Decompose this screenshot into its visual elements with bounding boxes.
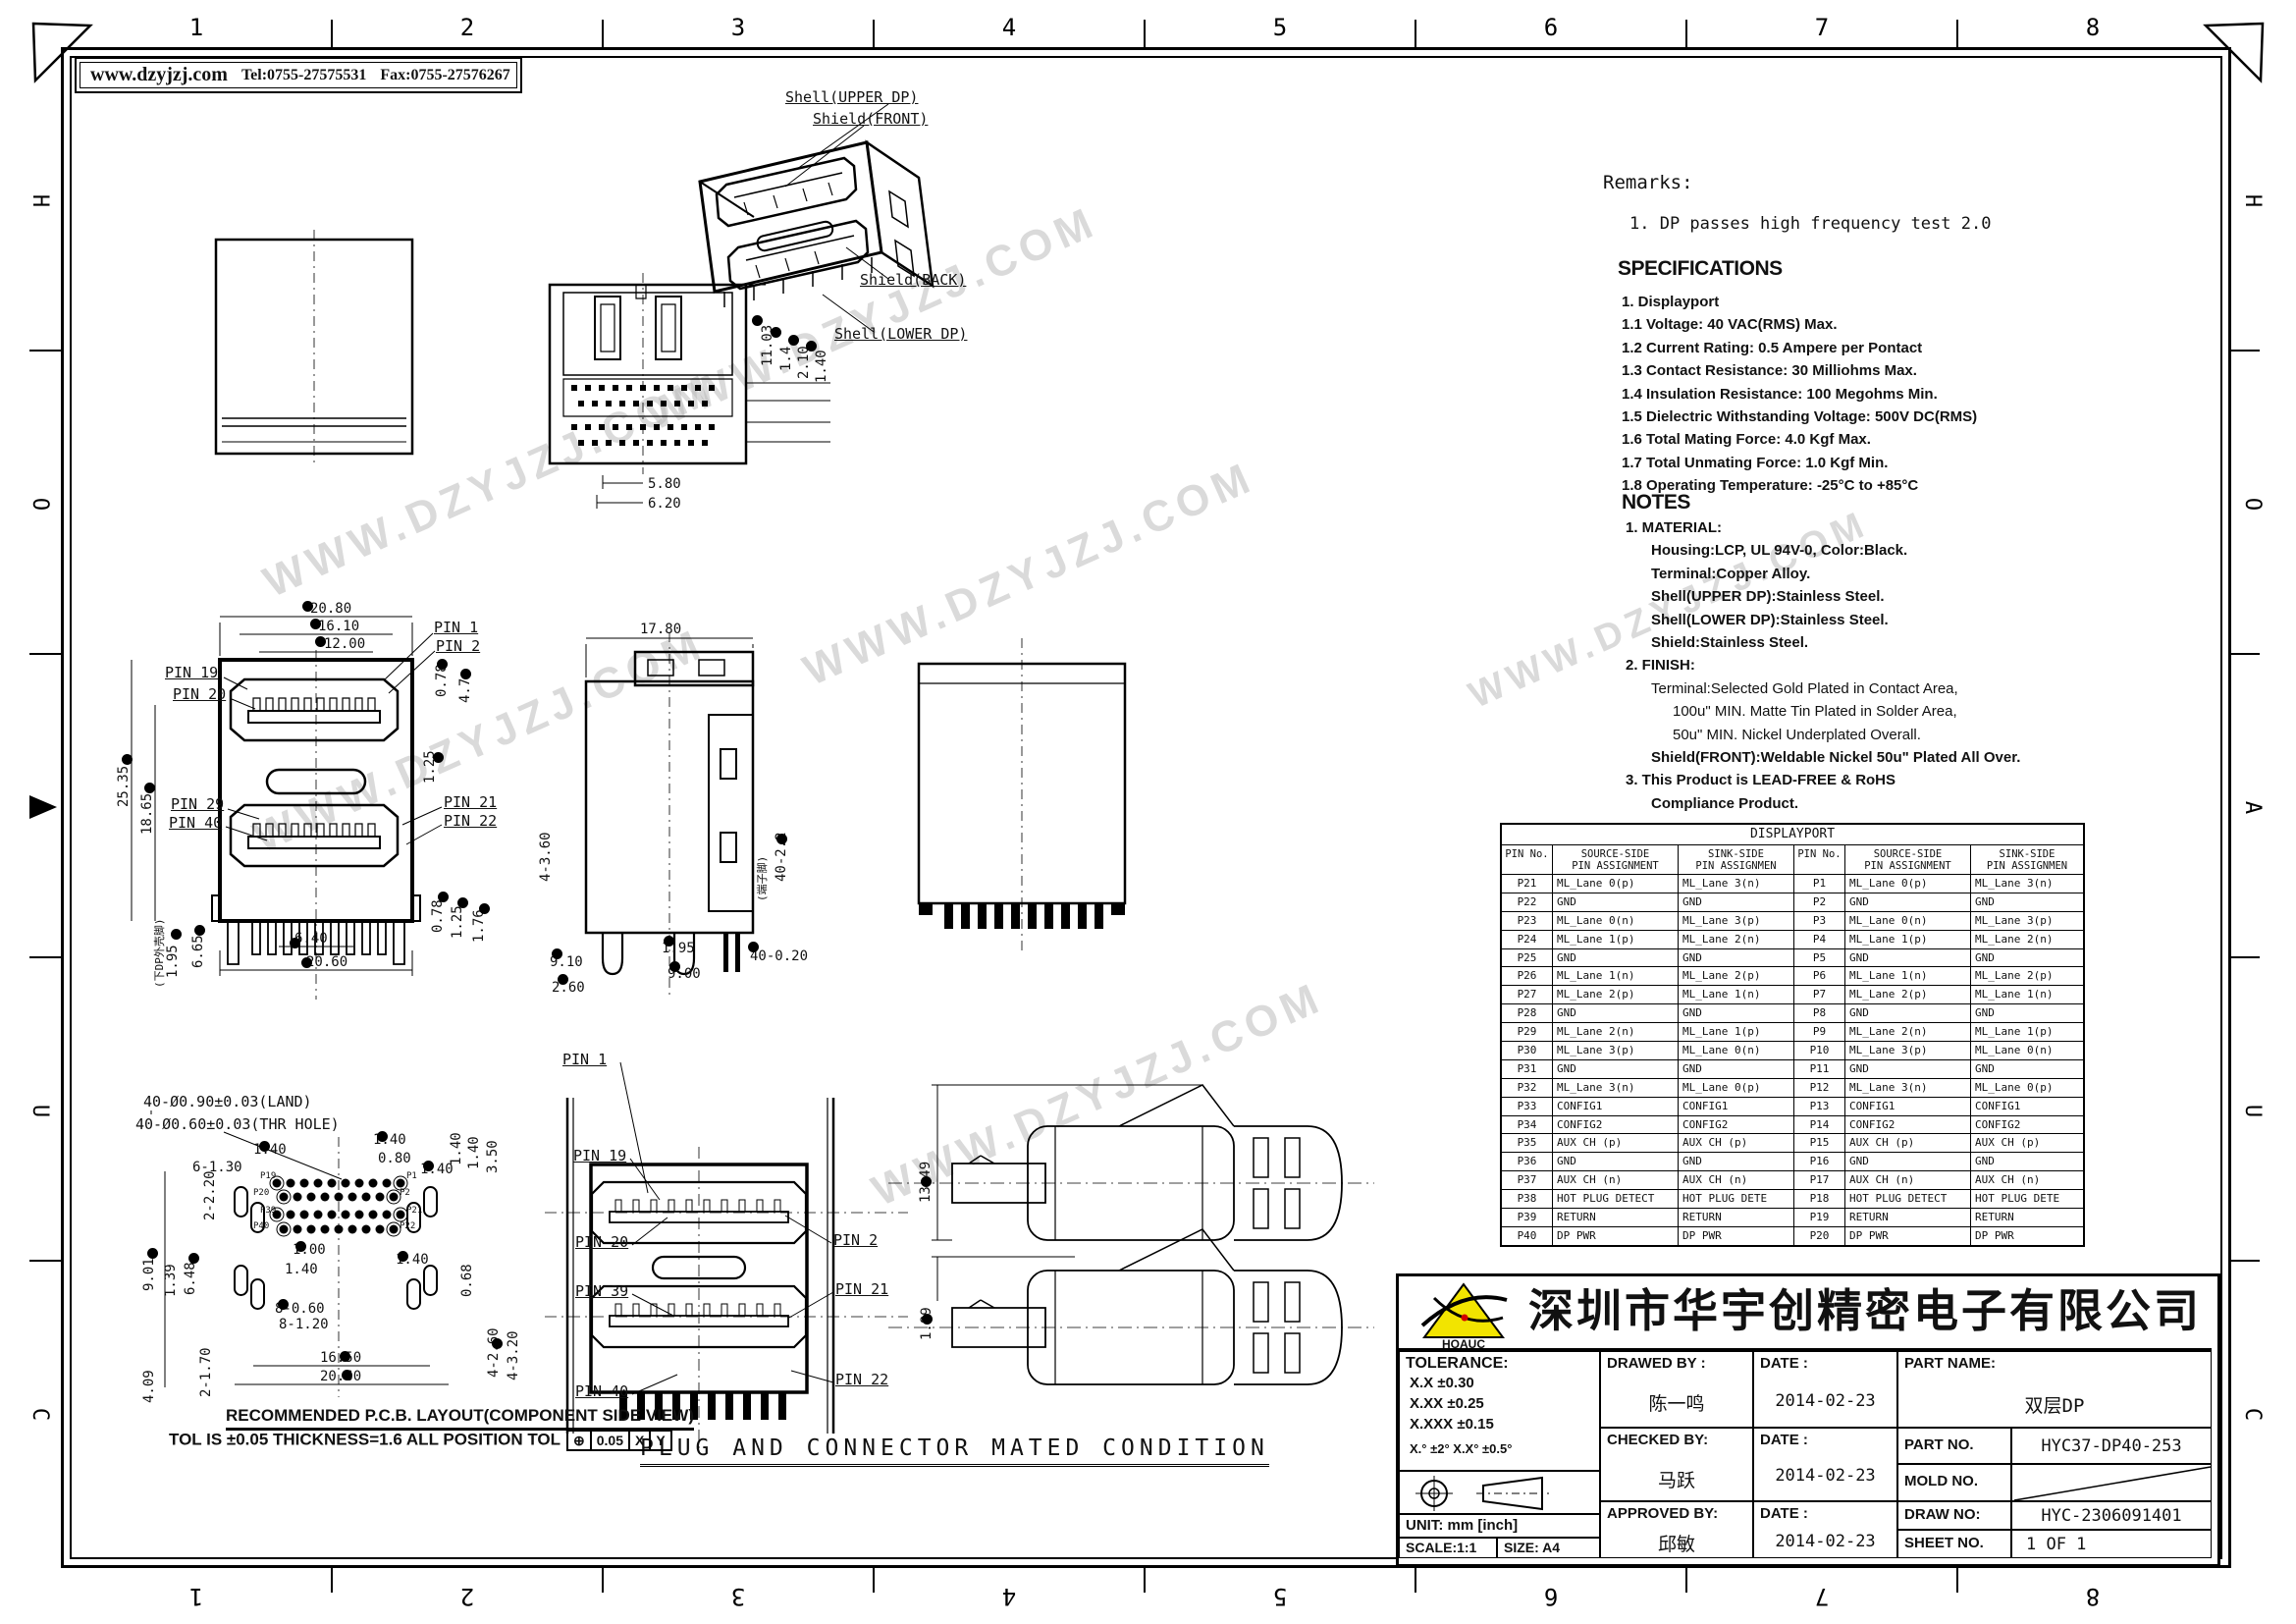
table-cell: GND [1845, 1060, 1971, 1078]
pad-label-p20: P20 [253, 1188, 269, 1198]
position-tolerance-frame: ⊕0.05XY [566, 1430, 672, 1451]
grid-tick [873, 1565, 875, 1593]
grid-tick [602, 20, 604, 47]
table-cell: GND [1679, 1004, 1794, 1022]
grid-tick [602, 1565, 604, 1593]
position-symbol: ⊕ [568, 1432, 592, 1449]
grid-tick [1415, 1565, 1416, 1593]
table-cell: DP PWR [1553, 1227, 1679, 1245]
company-banner: HOAUC 深圳市华宇创精密电子有限公司 [1399, 1276, 2212, 1351]
date-label: DATE : [1754, 1502, 1896, 1522]
spec-item: 1.5 Dielectric Withstanding Voltage: 500… [1622, 406, 1977, 428]
table-cell: GND [1553, 1153, 1679, 1170]
datum-y: Y [651, 1432, 669, 1449]
label-shield-back: Shield(BACK) [860, 271, 966, 289]
grid-col-label: 4 [989, 14, 1029, 41]
table-cell: P39 [1502, 1209, 1553, 1226]
table-cell: AUX CH (p) [1971, 1134, 2083, 1152]
dim-land: 40-Ø0.90±0.03(LAND) [143, 1093, 312, 1110]
tolerance-title: TOLERANCE: [1400, 1352, 1599, 1373]
table-cell: P29 [1502, 1023, 1553, 1041]
table-cell: GND [1971, 893, 2083, 911]
size-cell: SIZE: A4 [1497, 1538, 1600, 1558]
dim-1-95: 1.95 [165, 945, 181, 978]
grid-col-label: 1 [177, 1583, 216, 1610]
drawed-by-name: 陈一鸣 [1601, 1389, 1752, 1416]
grid-row-label: C [27, 1408, 52, 1421]
table-row: P27ML_Lane 2(p)ML_Lane 1(n)P7ML_Lane 2(p… [1502, 986, 2083, 1004]
table-cell: P14 [1794, 1116, 1845, 1134]
table-header-cell: PIN No. [1502, 845, 1553, 874]
balloon-marker [278, 1299, 289, 1310]
table-header-row: PIN No. SOURCE-SIDEPIN ASSIGNMENT SINK-S… [1502, 845, 2083, 875]
projection-symbols [1400, 1474, 1596, 1513]
view-pcb-layout: 40-Ø0.90±0.03(LAND) 40-Ø0.60±0.03(THR HO… [106, 1063, 592, 1456]
balloon-marker [460, 669, 471, 679]
table-cell: ML_Lane 1(p) [1971, 1023, 2083, 1041]
table-cell: GND [1679, 1153, 1794, 1170]
balloon-marker [806, 341, 817, 352]
label-pin2: PIN 2 [833, 1231, 878, 1249]
table-cell: ML_Lane 3(p) [1971, 912, 2083, 930]
sheet-no-label: SHEET NO. [1898, 1531, 2010, 1551]
table-cell: P10 [1794, 1042, 1845, 1059]
label-pin1: PIN 1 [434, 619, 478, 636]
table-cell: ML_Lane 2(n) [1553, 1023, 1679, 1041]
table-cell: P36 [1502, 1153, 1553, 1170]
dim-6-20: 6.20 [648, 496, 681, 512]
table-cell: CONFIG2 [1679, 1116, 1794, 1134]
table-cell: ML_Lane 1(n) [1679, 986, 1794, 1003]
table-cell: AUX CH (n) [1845, 1171, 1971, 1189]
balloon-marker [144, 783, 155, 793]
dim-2-60: 2.60 [552, 980, 585, 996]
grid-tick [1956, 20, 1958, 47]
table-cell: P12 [1794, 1079, 1845, 1097]
grid-tick [29, 350, 61, 352]
grid-tick [2228, 956, 2260, 958]
date-value: 2014-02-23 [1754, 1532, 1896, 1551]
table-cell: DP PWR [1971, 1227, 2083, 1245]
grid-tick [1685, 20, 1687, 47]
table-row: P24ML_Lane 1(p)ML_Lane 2(n)P4ML_Lane 1(p… [1502, 931, 2083, 949]
table-cell: ML_Lane 2(n) [1679, 931, 1794, 948]
table-cell: P21 [1502, 875, 1553, 893]
table-cell: DP PWR [1679, 1227, 1794, 1245]
label-shield-front: Shield(FRONT) [813, 110, 928, 128]
dim-8-1-20: 8-1.20 [279, 1317, 329, 1332]
spec-item: 1.2 Current Rating: 0.5 Ampere per Ponta… [1622, 337, 1977, 359]
grid-row-label: H [27, 194, 52, 207]
label-pin21: PIN 21 [444, 793, 497, 811]
balloon-marker [788, 335, 799, 346]
table-row: P37AUX CH (n)AUX CH (n)P17AUX CH (n)AUX … [1502, 1171, 2083, 1190]
grid-tick [873, 20, 875, 47]
table-cell: P35 [1502, 1134, 1553, 1152]
view-side: 17.80 4-3.60 1.95 9.00 9.10 2.60 40-0.20… [542, 587, 836, 1011]
dim-1-76: 1.76 [471, 909, 487, 943]
table-cell: GND [1553, 1060, 1679, 1078]
note-item: Compliance Product. [1651, 792, 2020, 815]
engineering-drawing-sheet: WWW.DZYJZJ.COM WWW.DZYJZJ.COM WWW.DZYJZJ… [0, 0, 2296, 1624]
table-cell: ML_Lane 3(n) [1845, 1079, 1971, 1097]
pad-label-p39: P39 [260, 1206, 276, 1216]
balloon-marker [301, 957, 312, 968]
grid-row-label: A [2240, 801, 2265, 814]
dim-6-48: 6.48 [183, 1262, 198, 1295]
grid-tick [331, 1565, 333, 1593]
dim-6-1-30: 6-1.30 [192, 1160, 242, 1175]
tolerance-angle-line: X.° ±2° X.X° ±0.5° [1400, 1438, 1599, 1459]
date-label: DATE : [1754, 1429, 1896, 1448]
table-header-cell: SINK-SIDEPIN ASSIGNMEN [1971, 845, 2083, 874]
table-cell: P4 [1794, 931, 1845, 948]
table-cell: HOT PLUG DETE [1971, 1190, 2083, 1208]
balloon-marker [921, 1176, 932, 1187]
table-header-cell: SINK-SIDEPIN ASSIGNMEN [1679, 845, 1794, 874]
table-cell: P13 [1794, 1098, 1845, 1115]
note-item: 2. FINISH: [1626, 654, 2020, 677]
balloon-marker [398, 1251, 408, 1262]
dim-thr-hole: 40-Ø0.60±0.03(THR HOLE) [135, 1115, 340, 1133]
pin-dot-rows [571, 385, 715, 446]
dim-6-65: 6.65 [190, 935, 206, 968]
mold-no-value-cell [2011, 1464, 2212, 1501]
part-no-label: PART NO. [1898, 1429, 2010, 1453]
unit-cell: UNIT: mm [inch] [1399, 1514, 1600, 1538]
label-pin29: PIN 29 [171, 795, 224, 813]
spec-item: 1.3 Contact Resistance: 30 Milliohms Max… [1622, 359, 1977, 382]
table-cell: P30 [1502, 1042, 1553, 1059]
dim-3-50: 3.50 [485, 1140, 501, 1173]
specifications-title: SPECIFICATIONS [1618, 257, 1783, 281]
pad-label-p19: P19 [260, 1171, 276, 1181]
table-row: P35AUX CH (p)AUX CH (p)P15AUX CH (p)AUX … [1502, 1134, 2083, 1153]
table-cell: P24 [1502, 931, 1553, 948]
draw-no-value: HYC-2306091401 [2012, 1506, 2211, 1526]
note-item: Terminal:Copper Alloy. [1651, 563, 2020, 585]
table-cell: P32 [1502, 1079, 1553, 1097]
table-cell: ML_Lane 1(n) [1553, 967, 1679, 985]
drawed-by-label: DRAWED BY : [1601, 1352, 1752, 1372]
balloon-marker [147, 1248, 158, 1259]
note-item: 3. This Product is LEAD-FREE & RoHS [1626, 769, 2020, 791]
dim-9-01: 9.01 [141, 1258, 157, 1291]
table-cell: AUX CH (n) [1553, 1171, 1679, 1189]
table-row: P38HOT PLUG DETECTHOT PLUG DETEP18HOT PL… [1502, 1190, 2083, 1209]
grid-tick [1144, 1565, 1146, 1593]
grid-col-label: 8 [2073, 14, 2112, 41]
grid-tick [1415, 20, 1416, 47]
table-cell: GND [1679, 1060, 1794, 1078]
label-pin22: PIN 22 [835, 1371, 888, 1388]
table-row: P22GNDGNDP2GNDGND [1502, 893, 2083, 912]
table-row: P26ML_Lane 1(n)ML_Lane 2(p)P6ML_Lane 1(n… [1502, 967, 2083, 986]
table-cell: P6 [1794, 967, 1845, 985]
table-cell: GND [1845, 1153, 1971, 1170]
spec-item: 1. Displayport [1622, 291, 1977, 313]
table-cell: P18 [1794, 1190, 1845, 1208]
dim-0-78: 0.78 [430, 899, 446, 933]
grid-col-label: 5 [1260, 1583, 1300, 1610]
pad-label-p40: P40 [253, 1221, 269, 1231]
displayport-pin-table: DISPLAYPORT PIN No. SOURCE-SIDEPIN ASSIG… [1500, 823, 2085, 1247]
table-cell: AUX CH (p) [1845, 1134, 1971, 1152]
balloon-marker [748, 942, 759, 952]
label-pin19: PIN 19 [573, 1147, 626, 1164]
approved-by-cell: APPROVED BY: 邱敏 [1600, 1501, 1753, 1558]
note-item: Shell(LOWER DP):Stainless Steel. [1651, 609, 2020, 631]
table-cell: P20 [1794, 1227, 1845, 1245]
grid-tick [29, 653, 61, 655]
label-shell-lower-dp: Shell(LOWER DP) [834, 325, 967, 343]
grid-tick [29, 956, 61, 958]
table-row: P28GNDGNDP8GNDGND [1502, 1004, 2083, 1023]
table-cell: AUX CH (n) [1679, 1171, 1794, 1189]
spec-item: 1.7 Total Unmating Force: 1.0 Kgf Min. [1622, 452, 1977, 474]
vendor-fax: Fax:0755-27576267 [380, 67, 509, 84]
dim-1-40: 1.40 [449, 1132, 464, 1165]
note-lower-shell-leg: (下DP外壳脚) [152, 919, 166, 989]
draw-no-value-cell: HYC-2306091401 [2011, 1501, 2212, 1530]
company-logo: HOAUC [1405, 1278, 1522, 1349]
grid-col-label: 2 [448, 1583, 487, 1610]
table-row: P39RETURNRETURNP19RETURNRETURN [1502, 1209, 2083, 1227]
table-cell: ML_Lane 3(p) [1679, 912, 1794, 930]
table-cell: ML_Lane 3(n) [1553, 1079, 1679, 1097]
draw-no-label-cell: DRAW NO: [1897, 1501, 2011, 1530]
table-cell: GND [1971, 1060, 2083, 1078]
table-cell: P31 [1502, 1060, 1553, 1078]
grid-col-label: 5 [1260, 14, 1300, 41]
label-pin20: PIN 20 [173, 685, 226, 703]
table-cell: P5 [1794, 949, 1845, 967]
logo-text: HOAUC [1442, 1337, 1485, 1351]
label-pin20: PIN 20 [575, 1233, 628, 1251]
table-cell: GND [1553, 1004, 1679, 1022]
balloon-marker [437, 659, 448, 670]
grid-row-label: H [2240, 194, 2265, 207]
date-value: 2014-02-23 [1754, 1391, 1896, 1411]
dim-12-00: 12.00 [324, 636, 365, 652]
table-cell: CONFIG1 [1845, 1098, 1971, 1115]
table-cell: P38 [1502, 1190, 1553, 1208]
balloon-marker [552, 948, 562, 959]
table-title: DISPLAYPORT [1502, 825, 2083, 845]
balloon-marker [295, 1241, 306, 1252]
grid-tick [2228, 350, 2260, 352]
table-row: P40DP PWRDP PWRP20DP PWRDP PWR [1502, 1227, 2083, 1245]
tolerance-line: X.X ±0.30 [1400, 1373, 1599, 1393]
note-item: Shield:Stainless Steel. [1651, 631, 2020, 654]
view-mated-plugs: 13.49 1.89 [879, 1065, 1384, 1434]
balloon-marker [310, 619, 321, 629]
table-cell: P9 [1794, 1023, 1845, 1041]
dim-0-80: 0.80 [378, 1151, 411, 1166]
table-cell: AUX CH (n) [1971, 1171, 2083, 1189]
dim-20-80: 20.80 [310, 601, 351, 617]
grid-row-label: O [27, 498, 52, 511]
table-cell: HOT PLUG DETECT [1845, 1190, 1971, 1208]
table-cell: ML_Lane 1(n) [1971, 986, 2083, 1003]
scale-cell: SCALE:1:1 [1399, 1538, 1497, 1558]
grid-col-label: 6 [1531, 14, 1571, 41]
scale-label: SCALE:1:1 [1400, 1539, 1496, 1555]
dim-18-65: 18.65 [139, 793, 155, 835]
table-cell: GND [1971, 1153, 2083, 1170]
balloon-marker [922, 1314, 933, 1325]
table-cell: AUX CH (p) [1553, 1134, 1679, 1152]
table-row: P36GNDGNDP16GNDGND [1502, 1153, 2083, 1171]
balloon-marker [752, 315, 763, 326]
checked-by-cell: CHECKED BY: 马跃 [1600, 1428, 1753, 1501]
table-cell: ML_Lane 2(p) [1679, 967, 1794, 985]
table-cell: ML_Lane 0(p) [1679, 1079, 1794, 1097]
grid-col-label: 1 [177, 14, 216, 41]
table-cell: ML_Lane 0(n) [1845, 912, 1971, 930]
label-pin22: PIN 22 [444, 812, 497, 830]
table-cell: ML_Lane 1(p) [1553, 931, 1679, 948]
dim-20-60: 20.60 [306, 954, 347, 970]
dim-0-68: 0.68 [459, 1264, 475, 1297]
balloon-marker [438, 892, 449, 902]
pcb-tolerance-caption: TOL IS ±0.05 THICKNESS=1.6 ALL POSITION … [169, 1430, 672, 1451]
balloon-marker [558, 974, 568, 985]
label-pin21: PIN 21 [835, 1280, 888, 1298]
table-cell: RETURN [1971, 1209, 2083, 1226]
date-value: 2014-02-23 [1754, 1466, 1896, 1486]
table-cell: P40 [1502, 1227, 1553, 1245]
part-no-value-cell: HYC37-DP40-253 [2011, 1428, 2212, 1464]
view-shell-detail [212, 236, 418, 461]
table-cell: P37 [1502, 1171, 1553, 1189]
table-cell: P22 [1502, 893, 1553, 911]
date-cell-3: DATE : 2014-02-23 [1753, 1501, 1897, 1558]
remarks-title: Remarks: [1603, 172, 1693, 193]
position-value: 0.05 [592, 1432, 630, 1449]
table-cell: P17 [1794, 1171, 1845, 1189]
balloon-marker [669, 961, 680, 972]
table-cell: CONFIG2 [1845, 1116, 1971, 1134]
label-pin40: PIN 40 [169, 814, 222, 832]
table-row: P21ML_Lane 0(p)ML_Lane 3(n)P1ML_Lane 0(p… [1502, 875, 2083, 893]
table-cell: P27 [1502, 986, 1553, 1003]
sheet-no-value: 1 OF 1 [2012, 1535, 2211, 1554]
tolerance-line: X.XX ±0.25 [1400, 1393, 1599, 1414]
table-row: P30ML_Lane 3(p)ML_Lane 0(n)P10ML_Lane 3(… [1502, 1042, 2083, 1060]
table-cell: GND [1971, 1004, 2083, 1022]
tolerance-line: X.XXX ±0.15 [1400, 1414, 1599, 1435]
table-cell: ML_Lane 1(n) [1845, 967, 1971, 985]
grid-col-label: 7 [1802, 1583, 1842, 1610]
dim-20-60: 20.60 [320, 1369, 361, 1384]
balloon-marker [423, 1161, 434, 1171]
table-cell: CONFIG2 [1971, 1116, 2083, 1134]
table-cell: ML_Lane 3(n) [1679, 875, 1794, 893]
note-item: 100u" MIN. Matte Tin Plated in Solder Ar… [1673, 700, 2020, 723]
checked-by-name: 马跃 [1601, 1466, 1752, 1492]
spec-item: 1.1 Voltage: 40 VAC(RMS) Max. [1622, 313, 1977, 336]
table-cell: P19 [1794, 1209, 1845, 1226]
dim-1-25: 1.25 [450, 905, 465, 939]
balloon-marker [315, 636, 326, 647]
balloon-marker [259, 1141, 270, 1152]
notes-title: NOTES [1622, 491, 1690, 514]
dim-40-0-20: 40-0.20 [750, 948, 808, 964]
table-header-cell: SOURCE-SIDEPIN ASSIGNMENT [1845, 845, 1971, 874]
dim-4-09: 4.09 [141, 1370, 157, 1403]
table-row: P29ML_Lane 2(n)ML_Lane 1(p)P9ML_Lane 2(n… [1502, 1023, 2083, 1042]
mold-no-label: MOLD NO. [1898, 1465, 2010, 1489]
table-cell: CONFIG1 [1971, 1098, 2083, 1115]
dim-5-80: 5.80 [648, 476, 681, 492]
grid-tick [331, 20, 333, 47]
balloon-marker [664, 936, 674, 947]
note-item: Shell(UPPER DP):Stainless Steel. [1651, 585, 2020, 608]
table-cell: HOT PLUG DETECT [1553, 1190, 1679, 1208]
vendor-header-box: www.dzyjzj.com Tel:0755-27575531 Fax:075… [75, 57, 522, 93]
table-body: P21ML_Lane 0(p)ML_Lane 3(n)P1ML_Lane 0(p… [1502, 875, 2083, 1245]
table-header-cell: SOURCE-SIDEPIN ASSIGNMENT [1553, 845, 1679, 874]
table-cell: ML_Lane 0(n) [1971, 1042, 2083, 1059]
pad-label-p21: P21 [406, 1206, 422, 1216]
dim-16-10: 16.10 [318, 619, 359, 634]
approved-by-name: 邱敏 [1601, 1530, 1752, 1556]
table-row: P33CONFIG1CONFIG1P13CONFIG1CONFIG1 [1502, 1098, 2083, 1116]
balloon-marker [433, 752, 444, 763]
grid-col-label: 3 [719, 14, 758, 41]
unit-label: UNIT: mm [inch] [1400, 1515, 1599, 1534]
table-cell: GND [1553, 893, 1679, 911]
balloon-marker [188, 1253, 199, 1264]
grid-tick [2228, 653, 2260, 655]
company-name: 深圳市华宇创精密电子有限公司 [1526, 1276, 2204, 1347]
table-cell: P11 [1794, 1060, 1845, 1078]
part-no-label-cell: PART NO. [1897, 1428, 2011, 1464]
grid-tick [29, 1260, 61, 1262]
table-cell: RETURN [1679, 1209, 1794, 1226]
balloon-marker [479, 903, 490, 914]
table-cell: RETURN [1553, 1209, 1679, 1226]
grid-row-label: U [2240, 1105, 2265, 1117]
dim-4-3-60: 4-3.60 [538, 832, 554, 882]
label-pin19: PIN 19 [165, 664, 218, 681]
table-cell: ML_Lane 0(p) [1971, 1079, 2083, 1097]
spec-item: 1.4 Insulation Resistance: 100 Megohms M… [1622, 383, 1977, 406]
table-cell: ML_Lane 0(p) [1553, 875, 1679, 893]
notes-list: 1. MATERIAL: Housing:LCP, UL 94V-0, Colo… [1626, 516, 2020, 815]
dim-1-40: 1.40 [466, 1136, 482, 1169]
table-cell: P3 [1794, 912, 1845, 930]
dim-2-1-70: 2-1.70 [198, 1347, 214, 1397]
balloon-marker [340, 1351, 350, 1362]
balloon-marker [457, 897, 468, 908]
table-cell: ML_Lane 0(n) [1679, 1042, 1794, 1059]
dim-17-80: 17.80 [640, 622, 681, 637]
table-cell: CONFIG1 [1679, 1098, 1794, 1115]
note-item: Terminal:Selected Gold Plated in Contact… [1651, 677, 2020, 700]
balloon-marker [771, 327, 781, 338]
table-cell: ML_Lane 3(n) [1971, 875, 2083, 893]
table-cell: CONFIG2 [1553, 1116, 1679, 1134]
mold-no-label-cell: MOLD NO. [1897, 1464, 2011, 1501]
grid-col-label: 7 [1802, 14, 1842, 41]
table-cell: GND [1845, 949, 1971, 967]
balloon-marker [122, 754, 133, 765]
table-cell: GND [1845, 1004, 1971, 1022]
note-terminal-leg: (端子脚) [755, 856, 769, 901]
grid-tick [1956, 1565, 1958, 1593]
